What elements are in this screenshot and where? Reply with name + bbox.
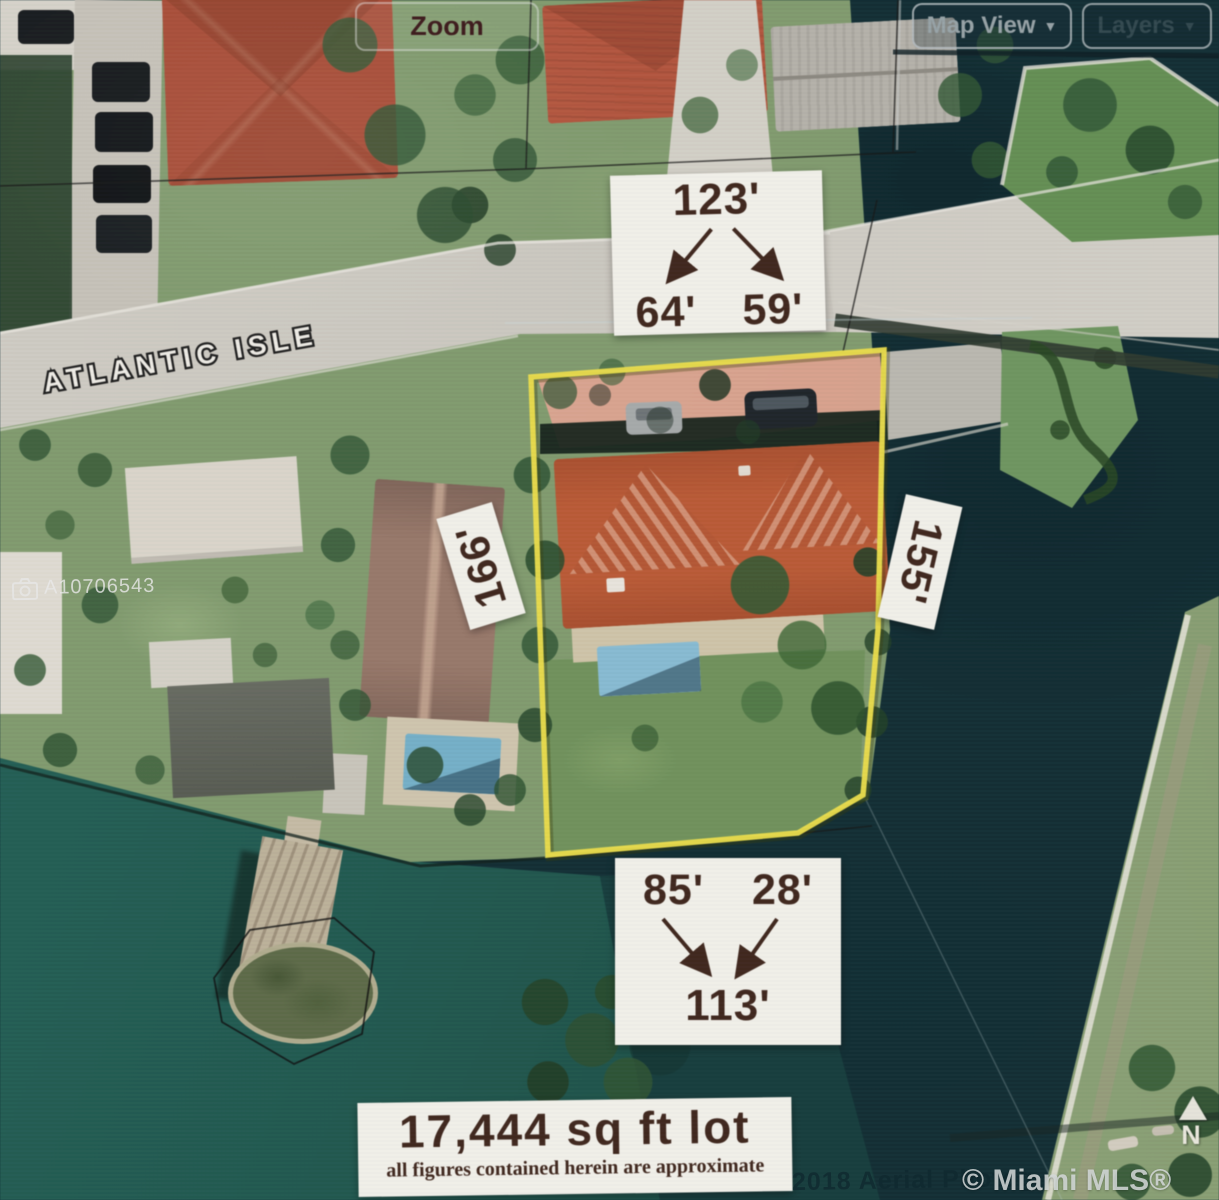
lot-area-disclaimer: all figures contained herein are approxi… xyxy=(358,1154,792,1183)
rear-left-dimension: 85' xyxy=(643,866,704,915)
compass-arrow-icon xyxy=(1179,1096,1207,1120)
subject-lot-outline xyxy=(531,350,884,855)
lot-area-value: 17,444 sq ft lot xyxy=(357,1099,792,1159)
front-dimensions-card: 123' 64' 59' xyxy=(610,170,826,335)
compass-north-label: N xyxy=(1176,1120,1206,1151)
front-total-dimension: 123' xyxy=(610,172,823,228)
layers-button-label: Layers xyxy=(1097,12,1174,40)
map-view-button[interactable]: Map View ▼ xyxy=(912,3,1072,49)
map-view-button-label: Map View xyxy=(927,12,1036,40)
zoom-button[interactable]: Zoom xyxy=(355,2,539,51)
layers-button[interactable]: Layers ▼ xyxy=(1082,3,1212,49)
front-right-dimension: 59' xyxy=(742,285,804,336)
map-viewport[interactable]: ATLANTIC ISLE 123' 64' 59' 166' 155' 85'… xyxy=(0,0,1219,1200)
dimension-arrows xyxy=(611,222,825,290)
rear-total-dimension: 113' xyxy=(615,981,841,1031)
street-label: ATLANTIC ISLE xyxy=(41,320,320,398)
compass: N xyxy=(1176,1096,1216,1148)
rear-dimensions-card: 85' 28' 113' xyxy=(615,858,841,1045)
island-parcel-outline xyxy=(214,918,374,1064)
chevron-down-icon: ▼ xyxy=(1183,19,1197,33)
rear-right-dimension: 28' xyxy=(752,866,813,915)
chevron-down-icon: ▼ xyxy=(1044,19,1058,33)
road-markings xyxy=(0,160,1219,430)
mls-aerial-screenshot: ATLANTIC ISLE 123' 64' 59' 166' 155' 85'… xyxy=(0,0,1219,1200)
parcel-lines xyxy=(0,0,916,858)
dimension-arrows xyxy=(615,915,841,981)
front-left-dimension: 64' xyxy=(635,288,697,339)
lot-area-card: 17,444 sq ft lot all figures contained h… xyxy=(357,1097,792,1197)
zoom-button-label: Zoom xyxy=(410,11,484,42)
subject-lot-outline-shadow xyxy=(533,352,886,857)
hedge-squiggle xyxy=(1030,345,1113,500)
